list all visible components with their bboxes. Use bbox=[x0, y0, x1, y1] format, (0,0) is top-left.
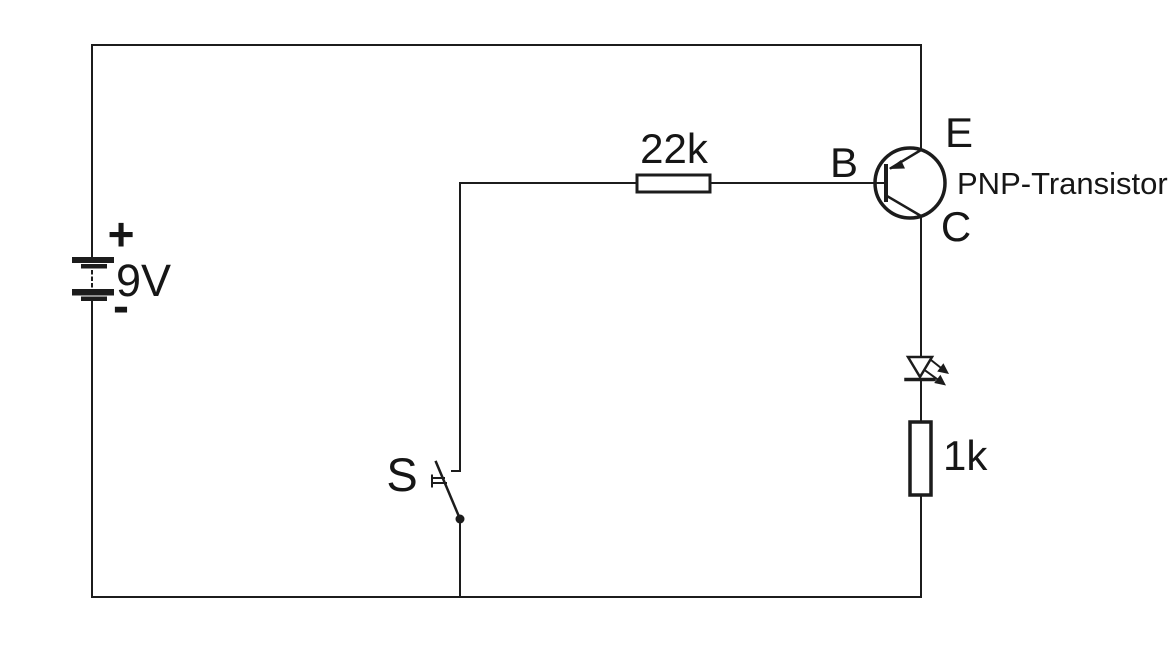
circuit-diagram: + 9V - S 22k B E C PNP-Transistor 1k bbox=[0, 0, 1174, 645]
battery-plate-short-top bbox=[81, 264, 107, 269]
battery-plus-label: + bbox=[108, 208, 135, 260]
transistor-collector-label: C bbox=[941, 203, 971, 250]
switch-label: S bbox=[386, 448, 417, 501]
led-emission-arrowhead-2 bbox=[934, 375, 946, 386]
wire-switch-upper bbox=[452, 183, 460, 471]
led-icon bbox=[906, 357, 943, 381]
led-emission-arrowhead-1 bbox=[937, 363, 949, 374]
battery-minus-label: - bbox=[113, 280, 129, 333]
switch-contact-dot bbox=[456, 515, 465, 524]
transistor-base-label: B bbox=[830, 139, 858, 186]
circuit-lines bbox=[92, 45, 945, 597]
resistor-22k-label: 22k bbox=[640, 125, 709, 172]
battery-plate-long-bottom bbox=[72, 289, 114, 296]
circuit-diagram-canvas: + 9V - S 22k B E C PNP-Transistor 1k bbox=[0, 0, 1174, 645]
circuit-fills bbox=[72, 160, 949, 524]
circuit-labels: + 9V - S 22k B E C PNP-Transistor 1k bbox=[108, 109, 1168, 501]
wire-bottom-loop bbox=[92, 301, 921, 597]
resistor-1k-icon bbox=[910, 422, 931, 495]
transistor-icon bbox=[875, 148, 945, 218]
transistor-type-label: PNP-Transistor bbox=[957, 166, 1168, 201]
led-triangle bbox=[908, 357, 932, 377]
battery-plate-short-bottom bbox=[81, 297, 107, 302]
transistor-emitter-label: E bbox=[945, 109, 973, 156]
wire-top-loop bbox=[92, 45, 921, 257]
resistor-1k-label: 1k bbox=[943, 432, 988, 479]
resistor-22k-icon bbox=[637, 175, 710, 192]
